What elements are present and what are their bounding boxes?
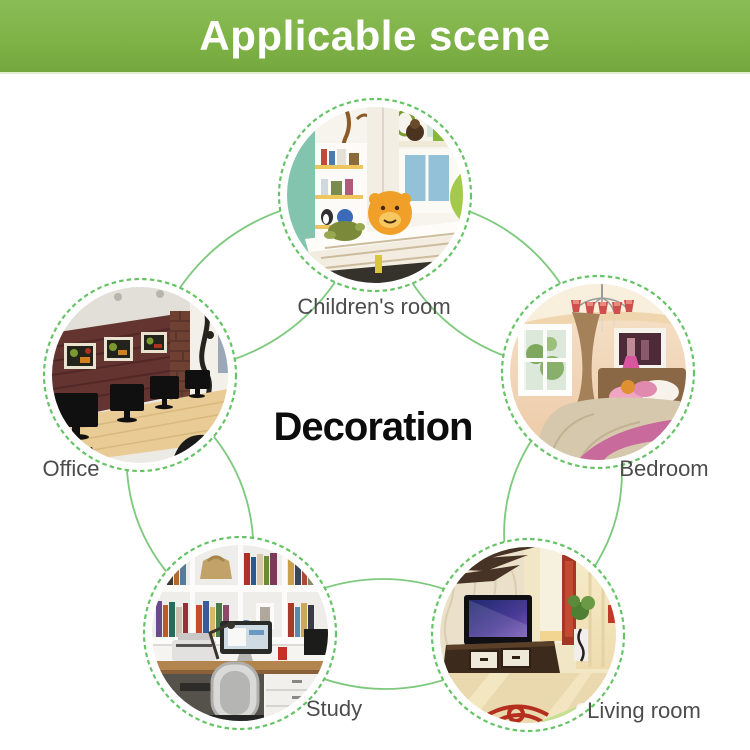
red-cup bbox=[278, 647, 287, 660]
decoration-center-label: Decoration bbox=[274, 405, 473, 450]
bedroom-image bbox=[510, 284, 686, 460]
living-room-label: Living room bbox=[587, 698, 701, 724]
wall-picture bbox=[614, 328, 666, 370]
childrens-room-label: Children's room bbox=[297, 294, 450, 320]
office-chair bbox=[206, 663, 264, 721]
lit-pillar bbox=[540, 547, 562, 643]
living-room-image bbox=[440, 547, 616, 723]
childrens-room-photo-circle bbox=[287, 107, 463, 283]
office-image bbox=[52, 287, 228, 463]
printer bbox=[172, 633, 216, 661]
study-photo-circle bbox=[152, 545, 328, 721]
flat-screen-tv bbox=[464, 595, 532, 650]
childrens-room-image bbox=[287, 107, 463, 283]
office-photo-circle bbox=[52, 287, 228, 463]
window bbox=[518, 324, 572, 396]
living-room-photo-circle bbox=[440, 547, 616, 723]
office-label: Office bbox=[42, 456, 99, 482]
bedroom-photo-circle bbox=[510, 284, 686, 460]
study-image bbox=[152, 545, 328, 721]
bedroom-label: Bedroom bbox=[619, 456, 708, 482]
bed-leg bbox=[375, 255, 382, 273]
pooh-bear-plush bbox=[368, 191, 412, 235]
second-monitor bbox=[304, 629, 328, 655]
study-label: Study bbox=[306, 696, 362, 722]
applicable-scene-page: Applicable scene bbox=[0, 0, 750, 750]
